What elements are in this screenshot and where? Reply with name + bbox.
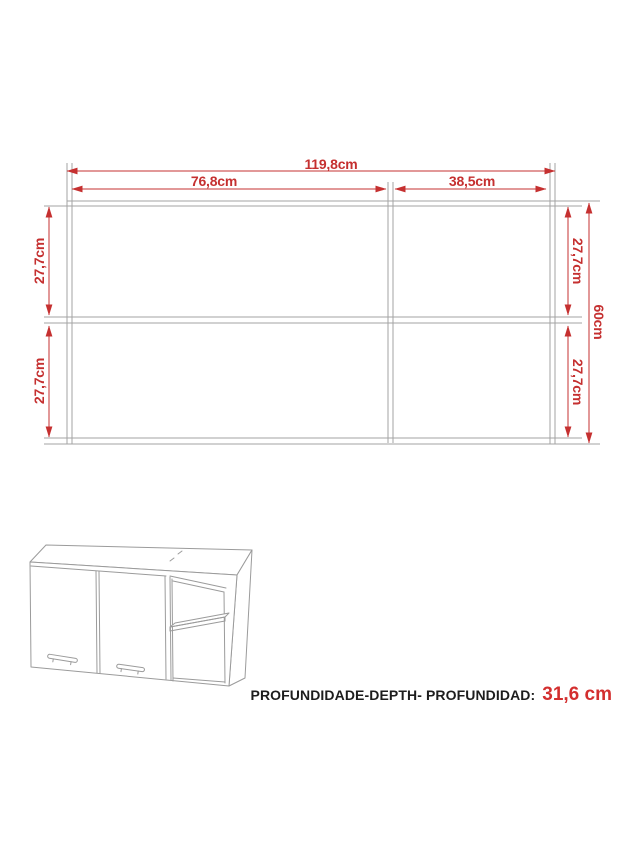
dim-label-total-width: 119,8cm [304, 157, 357, 171]
product-dimension-sheet: 119,8cm 76,8cm 38,5cm 27,7cm 27,7cm 27,7… [0, 0, 640, 865]
dim-label-left-bottom-height: 27,7cm [32, 358, 46, 404]
dim-label-left-top-height: 27,7cm [32, 238, 46, 284]
depth-note: PROFUNDIDADE-DEPTH- PROFUNDIDAD: 31,6 cm [251, 684, 612, 706]
dim-label-right-top-height: 27,7cm [571, 238, 585, 284]
dim-label-right-bottom-height: 27,7cm [571, 359, 585, 405]
dim-label-left-width: 76,8cm [191, 174, 237, 188]
depth-label: PROFUNDIDADE-DEPTH- PROFUNDIDAD: [251, 687, 536, 703]
depth-value: 31,6 cm [542, 684, 612, 706]
cabinet-3d-sketch [15, 535, 265, 700]
dimension-lines [49, 171, 589, 443]
dim-label-total-height: 60cm [592, 304, 606, 339]
cabinet-outline [44, 163, 600, 444]
front-elevation-diagram [0, 0, 640, 500]
dim-label-right-width: 38,5cm [449, 174, 495, 188]
